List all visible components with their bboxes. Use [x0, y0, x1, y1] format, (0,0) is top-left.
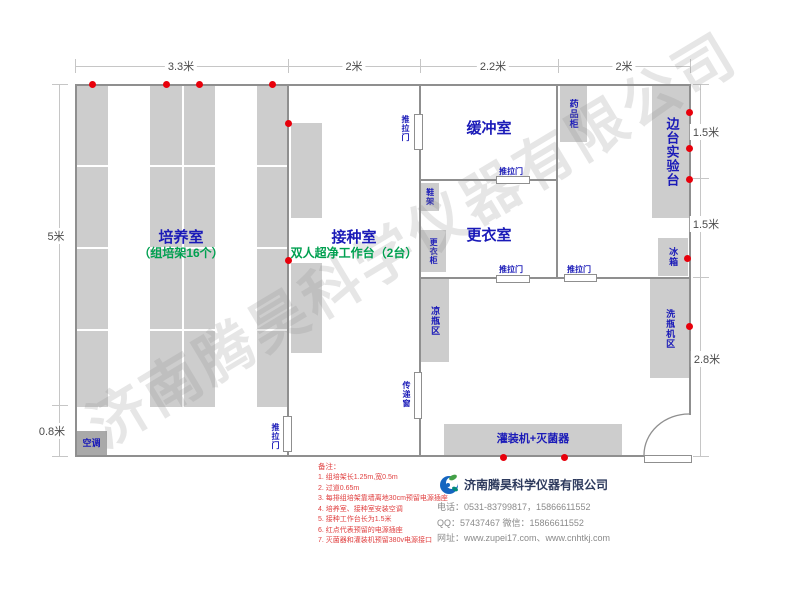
- wall-buffer-changing: [419, 179, 497, 181]
- power-outlet-dot: [285, 120, 292, 127]
- power-outlet-dot: [196, 81, 203, 88]
- dim-right-2: 1.5米: [690, 216, 722, 232]
- sliding-door-symbol: [496, 275, 530, 283]
- company-website: 网址：www.zupei17.com、www.cnhtkj.com: [437, 531, 610, 544]
- medicine-cabinet-label: 药品柜: [568, 99, 578, 129]
- power-outlet-dot: [686, 176, 693, 183]
- dim-left-1: 5米: [44, 228, 67, 244]
- company-logo-icon: [439, 473, 461, 495]
- fridge-label: 冰箱: [668, 247, 678, 267]
- wall-inoculation-buffer: [419, 84, 421, 114]
- dim-right-1: 1.5米: [690, 124, 722, 140]
- bottle-washer-area: 洗瓶机区: [650, 279, 690, 378]
- outer-wall-left: [75, 84, 77, 457]
- transfer-window-label: 传递窗: [401, 381, 412, 415]
- dim-tick: [52, 84, 68, 85]
- floor-plan: 济南腾昊科学仪器有限公司 3.3米 2米 2.2米 2米 5米 0.8米 1.5…: [0, 0, 800, 600]
- dim-tick: [693, 178, 709, 179]
- dim-tick: [558, 59, 559, 73]
- wall-buffer-rightroom: [556, 84, 558, 279]
- side-lab-bench-label: 边台实验台: [664, 117, 679, 187]
- sliding-door-label: 推拉门: [270, 423, 281, 455]
- dim-tick: [693, 277, 709, 278]
- dim-line-left: [59, 84, 60, 457]
- entry-door-arc: [640, 410, 696, 460]
- bottle-washer-label: 洗瓶机区: [665, 309, 675, 349]
- air-conditioner: 空调: [76, 431, 107, 455]
- wall-cultivation-inoculation: [287, 84, 289, 416]
- power-outlet-dot: [269, 81, 276, 88]
- notes-title: 备注：: [318, 461, 448, 472]
- sliding-door-symbol: [496, 176, 530, 184]
- dim-top-1: 3.3米: [165, 58, 197, 74]
- dim-top-3: 2.2米: [477, 58, 509, 74]
- power-outlet-dot: [89, 81, 96, 88]
- transfer-window-symbol: [414, 372, 422, 419]
- wall-rightroom-bottomroom: [595, 277, 691, 279]
- dim-tick: [52, 456, 68, 457]
- note-item: 4. 培养室、接种室安装空调: [318, 505, 448, 516]
- dim-tick: [52, 405, 68, 406]
- power-outlet-dot: [686, 323, 693, 330]
- power-outlet-dot: [500, 454, 507, 461]
- wall-inoculation-changing: [419, 148, 421, 372]
- company-name: 济南腾昊科学仪器有限公司: [464, 476, 608, 493]
- dim-left-2: 0.8米: [36, 423, 68, 439]
- side-lab-bench: 边台实验台: [652, 86, 690, 218]
- note-item: 5. 接种工作台长为1.5米: [318, 515, 448, 526]
- dim-tick: [693, 84, 709, 85]
- bottle-cooling-label: 凉瓶区: [430, 306, 440, 336]
- clean-bench: [291, 123, 322, 218]
- note-item: 1. 组培架长1.25m,宽0.5m: [318, 473, 448, 484]
- power-outlet-dot: [686, 145, 693, 152]
- wall-buffer-changing: [529, 179, 558, 181]
- power-outlet-dot: [561, 454, 568, 461]
- sliding-door-label: 推拉门: [400, 115, 411, 149]
- note-item: 3. 每排组培架靠墙离地30cm预留电源插座: [318, 494, 448, 505]
- sliding-door-symbol: [414, 114, 423, 150]
- room-title-changing: 更衣室: [429, 224, 549, 245]
- note-item: 7. 灭菌器和灌装机预留380v电源接口: [318, 536, 448, 547]
- sliding-door-symbol: [283, 416, 292, 452]
- filling-machine-sterilizer: 灌装机+灭菌器: [444, 424, 622, 455]
- dim-right-3: 2.8米: [691, 351, 723, 367]
- dim-top-4: 2米: [612, 58, 635, 74]
- culture-rack-column: [77, 85, 108, 407]
- note-item: 2. 过道0.65m: [318, 484, 448, 495]
- dim-top-2: 2米: [342, 58, 365, 74]
- medicine-cabinet: 药品柜: [560, 86, 587, 142]
- room-title-buffer: 缓冲室: [429, 117, 549, 138]
- sliding-door-label: 推拉门: [499, 166, 523, 177]
- notes-block: 备注： 1. 组培架长1.25m,宽0.5m 2. 过道0.65m 3. 每排组…: [318, 461, 448, 547]
- wall-inoculation-bottom: [419, 417, 421, 457]
- room-sub-cultivation: （组培架16个）: [138, 244, 223, 261]
- company-phone: 电话：0531-83799817，15866611552: [437, 500, 590, 513]
- dim-tick: [75, 59, 76, 73]
- company-qq-wechat: QQ：57437467 微信：15866611552: [437, 516, 584, 529]
- sliding-door-label: 推拉门: [567, 264, 591, 275]
- bottle-cooling-area: 凉瓶区: [421, 279, 449, 362]
- shoe-rack: 鞋架: [421, 183, 439, 211]
- filling-machine-label: 灌装机+灭菌器: [497, 433, 569, 446]
- dim-tick: [690, 59, 691, 73]
- wall-changing-bottomroom: [419, 277, 497, 279]
- power-outlet-dot: [686, 109, 693, 116]
- dim-tick: [288, 59, 289, 73]
- clean-bench: [291, 263, 322, 353]
- power-outlet-dot: [684, 255, 691, 262]
- shoe-rack-label: 鞋架: [425, 188, 434, 206]
- sliding-door-symbol: [564, 274, 597, 282]
- air-conditioner-label: 空调: [82, 438, 100, 448]
- dim-tick: [420, 59, 421, 73]
- culture-rack-column: [257, 85, 288, 407]
- note-item: 6. 红点代表预留的电源插座: [318, 526, 448, 537]
- wall-changing-bottomroom: [529, 277, 566, 279]
- room-sub-inoculation: 双人超净工作台（2台）: [291, 244, 418, 261]
- sliding-door-label: 推拉门: [499, 264, 523, 275]
- power-outlet-dot: [163, 81, 170, 88]
